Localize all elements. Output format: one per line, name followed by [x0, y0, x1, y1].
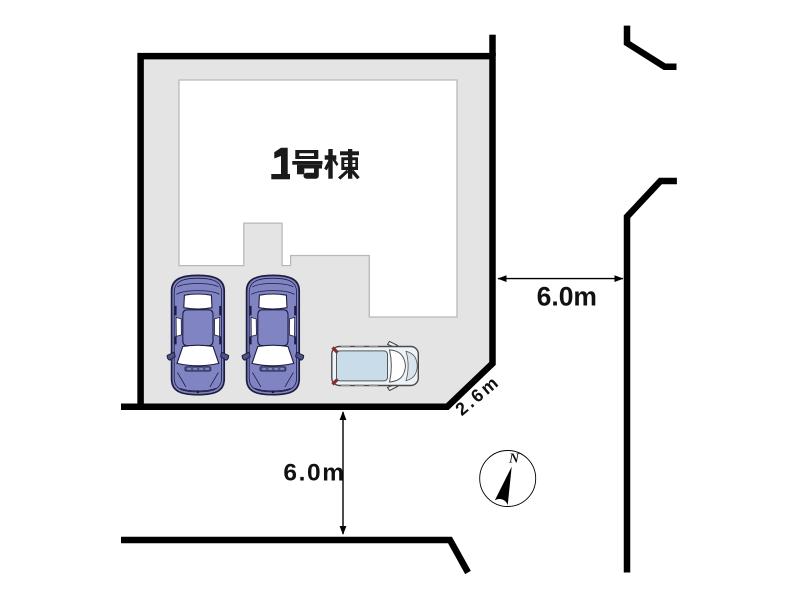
svg-text:6.0m: 6.0m [537, 282, 597, 312]
svg-text:N: N [508, 452, 520, 467]
svg-text:6.0m: 6.0m [283, 460, 345, 487]
